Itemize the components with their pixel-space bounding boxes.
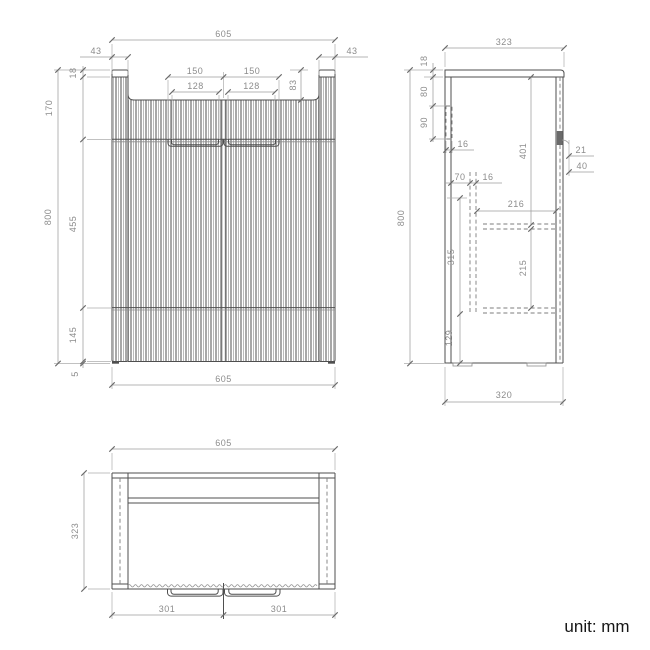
side-outline [445,70,564,363]
top-outline [112,473,335,589]
dim-front-drawer-height: 145 [68,327,78,344]
dim-top-door-right: 301 [271,604,288,614]
dim-side-top-thickness: 18 [419,55,429,66]
top-view: 605 323 301 301 [70,438,338,619]
dim-side-handle-depth: 40 [576,161,587,171]
dim-side-bracket-thickness: 16 [457,139,468,149]
dim-front-width-bottom: 605 [215,374,232,384]
dim-side-depth-bottom: 320 [496,390,513,400]
side-dimension-lines [410,48,594,402]
dim-top-depth: 323 [70,523,80,540]
side-dimension-ticks [407,45,571,404]
flute-texture-right-post [319,77,334,362]
dim-top-width: 605 [215,438,232,448]
front-foot-left [112,362,119,364]
dim-side-back-offset: 70 [454,172,465,182]
dim-front-panel-right: 43 [346,46,357,56]
dim-side-interior-height: 401 [518,143,528,160]
dim-front-recess: 83 [288,79,298,90]
side-handle-recess [557,131,563,145]
flute-texture-left-post [112,77,127,362]
dim-side-overall-height: 800 [396,210,406,227]
dim-side-shelf-clearance: 215 [518,260,528,277]
dim-top-door-left: 301 [159,604,176,614]
dim-front-upper-section: 170 [44,100,54,117]
dim-side-base-height: 129 [444,330,454,347]
dim-front-handle-outer-left: 150 [187,66,204,76]
front-view: 605 43 43 150 150 128 128 83 800 18 170 … [43,29,368,389]
top-dimension-ticks [81,446,337,617]
dim-front-width-top: 605 [215,29,232,39]
front-foot-right [328,362,335,364]
dim-front-handle-inner-left: 128 [187,81,204,91]
dim-side-depth-top: 323 [496,37,513,47]
dim-side-interior-depth: 216 [508,199,525,209]
dim-side-door-thickness: 21 [575,145,586,155]
side-hidden-lines [446,106,556,313]
dim-front-door-height: 455 [68,216,78,233]
dim-front-handle-inner-right: 128 [243,81,260,91]
top-dimension-lines [84,449,335,615]
dim-side-bracket-offset: 80 [419,86,429,97]
unit-note: unit: mm [564,617,629,636]
dim-side-bracket-height: 90 [419,117,429,128]
technical-drawing-page: 605 43 43 150 150 128 128 83 800 18 170 … [0,0,650,650]
dim-front-panel-left: 43 [90,46,101,56]
dim-front-handle-outer-right: 150 [244,66,261,76]
dim-side-panel-thickness: 16 [482,172,493,182]
dim-side-drawer-box-height: 315 [446,249,456,266]
cabinet-dimension-drawing: 605 43 43 150 150 128 128 83 800 18 170 … [0,0,650,650]
side-view: 323 18 80 90 800 16 70 16 216 401 215 31… [396,37,594,406]
dim-front-overall-height: 800 [43,209,53,226]
dim-front-top-thickness: 18 [68,67,78,78]
dim-front-base-gap: 5 [70,371,80,377]
top-fluted-edge [128,585,317,587]
